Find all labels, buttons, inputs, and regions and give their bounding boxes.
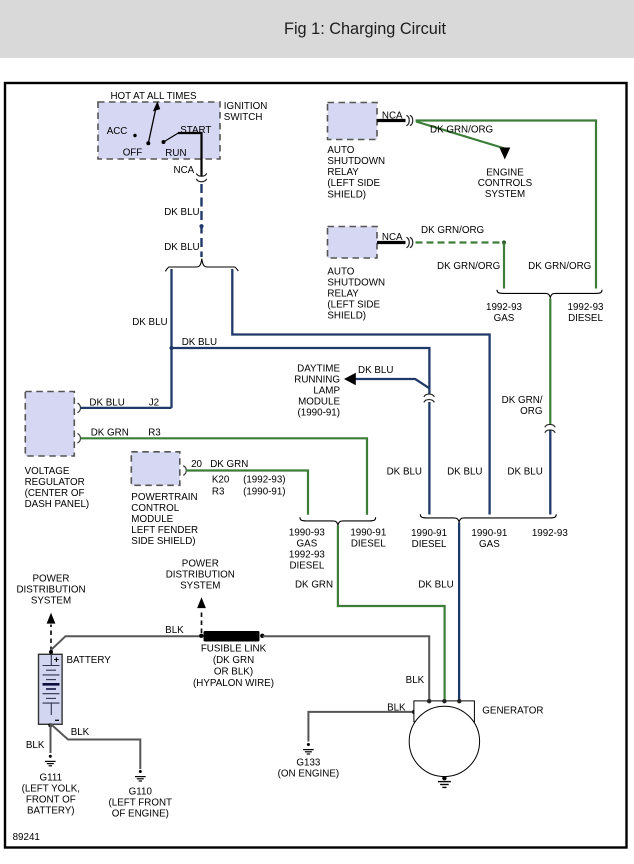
- svg-text:GENERATOR: GENERATOR: [482, 706, 543, 717]
- svg-text:ORG: ORG: [520, 406, 542, 417]
- svg-text:RELAY: RELAY: [327, 288, 359, 299]
- svg-text:R3: R3: [212, 487, 225, 498]
- svg-text:START: START: [180, 125, 211, 136]
- svg-text:BLK: BLK: [165, 625, 184, 636]
- svg-text:DK BLU: DK BLU: [182, 337, 217, 348]
- svg-text:BLK: BLK: [406, 675, 425, 686]
- svg-text:DK BLU: DK BLU: [387, 467, 422, 478]
- svg-text:DK BLU: DK BLU: [507, 467, 542, 478]
- svg-text:RUN: RUN: [165, 148, 186, 159]
- svg-text:NCA: NCA: [382, 232, 403, 243]
- svg-text:POWER: POWER: [182, 559, 219, 570]
- svg-text:1992-93: 1992-93: [568, 302, 605, 313]
- svg-text:20: 20: [191, 459, 202, 470]
- svg-text:BATTERY): BATTERY): [27, 805, 75, 816]
- svg-text:DIESEL: DIESEL: [412, 539, 447, 550]
- svg-text:DK BLU: DK BLU: [164, 242, 199, 253]
- svg-text:SHIELD): SHIELD): [327, 189, 366, 200]
- svg-text:FRONT OF: FRONT OF: [26, 794, 76, 805]
- svg-text:DK GRN/ORG: DK GRN/ORG: [528, 261, 591, 272]
- svg-text:CONTROL: CONTROL: [131, 503, 179, 514]
- svg-text:SYSTEM: SYSTEM: [485, 189, 525, 200]
- svg-text:DK GRN: DK GRN: [295, 580, 333, 591]
- svg-text:DK GRN: DK GRN: [91, 428, 129, 439]
- svg-text:DIESEL: DIESEL: [568, 313, 603, 324]
- svg-text:POWERTRAIN: POWERTRAIN: [131, 492, 197, 503]
- svg-text:NCA: NCA: [382, 110, 403, 121]
- svg-text:G133: G133: [296, 757, 321, 768]
- svg-text:SHUTDOWN: SHUTDOWN: [327, 277, 385, 288]
- svg-text:DK BLU: DK BLU: [132, 317, 167, 328]
- svg-text:1992-93: 1992-93: [486, 302, 523, 313]
- svg-text:(DK GRN: (DK GRN: [213, 655, 254, 666]
- svg-text:DIESEL: DIESEL: [289, 560, 324, 571]
- svg-text:ACC: ACC: [107, 126, 128, 137]
- svg-text:DASH PANEL): DASH PANEL): [25, 499, 90, 510]
- svg-text:(1990-91): (1990-91): [298, 407, 340, 418]
- svg-text:AUTO: AUTO: [327, 266, 354, 277]
- svg-text:SWITCH: SWITCH: [224, 112, 263, 123]
- svg-text:DK BLU: DK BLU: [418, 580, 453, 591]
- svg-text:(LEFT SIDE: (LEFT SIDE: [327, 178, 380, 189]
- svg-text:SHIELD): SHIELD): [327, 310, 366, 321]
- svg-text:RELAY: RELAY: [327, 167, 359, 178]
- svg-text:R3: R3: [148, 428, 161, 439]
- svg-text:DK GRN/ORG: DK GRN/ORG: [421, 225, 484, 236]
- svg-text:(ON ENGINE): (ON ENGINE): [278, 768, 340, 779]
- svg-text:REGULATOR: REGULATOR: [25, 477, 85, 488]
- svg-text:RUNNING: RUNNING: [294, 374, 340, 385]
- svg-text:89241: 89241: [13, 832, 40, 843]
- svg-text:POWER: POWER: [32, 574, 69, 585]
- svg-text:(CENTER OF: (CENTER OF: [25, 488, 85, 499]
- svg-text:(1990-91): (1990-91): [243, 487, 285, 498]
- svg-text:(LEFT SIDE: (LEFT SIDE: [327, 299, 380, 310]
- svg-text:BLK: BLK: [387, 702, 406, 713]
- svg-text:SIDE SHIELD): SIDE SHIELD): [131, 536, 195, 547]
- svg-text:1992-93: 1992-93: [289, 549, 326, 560]
- svg-text:HOT AT ALL TIMES: HOT AT ALL TIMES: [110, 91, 196, 102]
- svg-text:SYSTEM: SYSTEM: [180, 581, 220, 592]
- svg-text:IGNITION: IGNITION: [224, 101, 268, 112]
- svg-text:+: +: [54, 655, 60, 666]
- svg-text:DK BLU: DK BLU: [164, 207, 199, 218]
- svg-text:ENGINE: ENGINE: [486, 167, 524, 178]
- svg-text:SHUTDOWN: SHUTDOWN: [327, 156, 385, 167]
- svg-text:(HYPALON WIRE): (HYPALON WIRE): [193, 678, 274, 689]
- svg-text:DK GRN/ORG: DK GRN/ORG: [437, 261, 500, 272]
- svg-text:1990-91: 1990-91: [471, 528, 507, 539]
- svg-text:MODULE: MODULE: [131, 514, 173, 525]
- svg-text:DK BLU: DK BLU: [358, 365, 393, 376]
- svg-text:SYSTEM: SYSTEM: [31, 596, 71, 607]
- svg-text:DK BLU: DK BLU: [89, 397, 124, 408]
- svg-text:DAYTIME: DAYTIME: [297, 363, 340, 374]
- svg-text:AUTO: AUTO: [327, 145, 354, 156]
- svg-text:OF ENGINE): OF ENGINE): [112, 809, 169, 820]
- svg-text:(1992-93): (1992-93): [243, 475, 285, 486]
- svg-text:G111: G111: [40, 772, 63, 783]
- svg-text:DK GRN: DK GRN: [210, 459, 248, 470]
- svg-text:OR BLK): OR BLK): [214, 666, 253, 677]
- svg-text:NCA: NCA: [174, 165, 195, 176]
- svg-text:DK GRN/: DK GRN/: [502, 395, 543, 406]
- svg-text:(LEFT YOLK,: (LEFT YOLK,: [22, 783, 80, 794]
- svg-text:DISTRIBUTION: DISTRIBUTION: [166, 570, 235, 581]
- svg-text:DIESEL: DIESEL: [351, 538, 386, 549]
- svg-text:BATTERY: BATTERY: [67, 655, 112, 666]
- svg-text:Fig 1: Charging Circuit: Fig 1: Charging Circuit: [284, 20, 446, 38]
- svg-text:G110: G110: [129, 787, 153, 798]
- svg-text:1990-91: 1990-91: [411, 528, 447, 539]
- svg-text:DK BLU: DK BLU: [447, 467, 482, 478]
- svg-text:BLK: BLK: [26, 740, 45, 751]
- svg-text:OFF: OFF: [123, 148, 143, 159]
- svg-text:DISTRIBUTION: DISTRIBUTION: [16, 585, 85, 596]
- svg-text:LEFT FENDER: LEFT FENDER: [131, 525, 198, 536]
- svg-text:CONTROLS: CONTROLS: [478, 178, 533, 189]
- svg-text:VOLTAGE: VOLTAGE: [25, 466, 70, 477]
- svg-text:K20: K20: [212, 475, 230, 486]
- svg-text:BLK: BLK: [71, 727, 90, 738]
- svg-text:1990-91: 1990-91: [350, 527, 386, 538]
- svg-text:FUSIBLE LINK: FUSIBLE LINK: [201, 643, 267, 654]
- svg-text:J2: J2: [149, 397, 159, 408]
- svg-text:1992-93: 1992-93: [532, 528, 569, 539]
- svg-text:DK GRN/ORG: DK GRN/ORG: [430, 124, 493, 135]
- svg-text:GAS: GAS: [494, 313, 515, 324]
- svg-text:GAS: GAS: [479, 539, 500, 550]
- svg-text:LAMP: LAMP: [313, 385, 340, 396]
- svg-text:MODULE: MODULE: [298, 396, 340, 407]
- svg-text:(LEFT FRONT: (LEFT FRONT: [109, 798, 173, 809]
- svg-text:1990-93: 1990-93: [289, 527, 326, 538]
- svg-text:GAS: GAS: [297, 538, 318, 549]
